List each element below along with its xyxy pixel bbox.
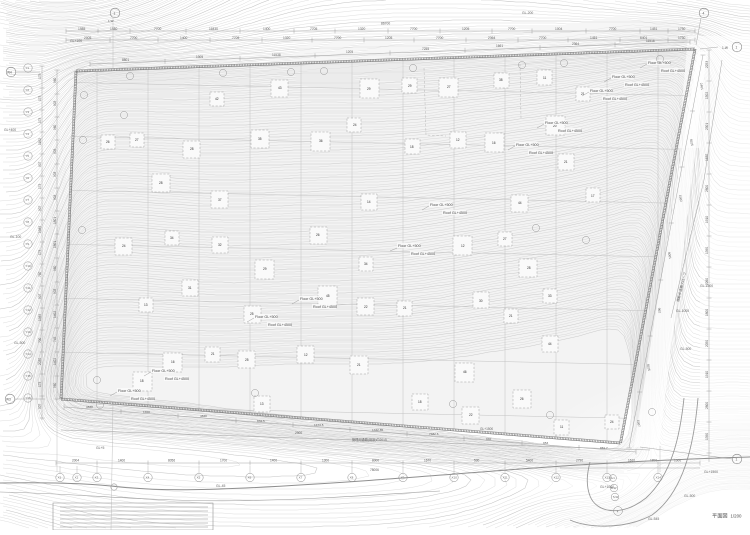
svg-text:14: 14 bbox=[367, 200, 371, 204]
svg-text:GL-500: GL-500 bbox=[680, 347, 691, 351]
svg-text:Y5: Y5 bbox=[25, 154, 29, 158]
svg-text:21: 21 bbox=[357, 363, 361, 367]
svg-text:700: 700 bbox=[38, 337, 42, 343]
svg-text:173: 173 bbox=[38, 183, 42, 189]
svg-text:86700: 86700 bbox=[381, 22, 390, 26]
svg-text:Y11: Y11 bbox=[25, 286, 30, 290]
svg-text:18: 18 bbox=[140, 379, 144, 383]
svg-text:1801: 1801 bbox=[53, 241, 57, 248]
svg-text:X8: X8 bbox=[350, 476, 354, 480]
svg-text:7705: 7705 bbox=[232, 36, 240, 40]
svg-text:2790: 2790 bbox=[576, 459, 583, 463]
svg-text:X3: X3 bbox=[95, 476, 99, 480]
svg-text:1400: 1400 bbox=[270, 459, 277, 463]
svg-text:31: 31 bbox=[188, 286, 192, 290]
svg-text:5-W: 5-W bbox=[613, 495, 618, 499]
svg-text:12: 12 bbox=[456, 138, 460, 142]
svg-text:8000: 8000 bbox=[372, 459, 379, 463]
svg-text:Roof GL+4500: Roof GL+4500 bbox=[411, 252, 435, 256]
svg-text:45: 45 bbox=[326, 294, 330, 298]
svg-text:Y9: Y9 bbox=[25, 242, 29, 246]
svg-text:1980: 1980 bbox=[110, 27, 118, 31]
svg-text:27: 27 bbox=[503, 237, 507, 241]
svg-text:Floor GL+500: Floor GL+500 bbox=[545, 121, 568, 125]
svg-text:1-W: 1-W bbox=[108, 19, 114, 23]
svg-text:881.7: 881.7 bbox=[600, 446, 608, 450]
svg-text:44: 44 bbox=[518, 201, 522, 205]
svg-text:Roof GL+4500: Roof GL+4500 bbox=[558, 129, 582, 133]
svg-text:1162: 1162 bbox=[38, 138, 42, 145]
svg-text:18: 18 bbox=[418, 400, 422, 404]
svg-text:1985: 1985 bbox=[38, 314, 42, 321]
svg-text:43: 43 bbox=[278, 86, 282, 90]
svg-text:Roof GL+4500: Roof GL+4500 bbox=[603, 97, 627, 101]
svg-text:940: 940 bbox=[486, 437, 491, 441]
svg-text:21: 21 bbox=[211, 352, 215, 356]
svg-text:4840: 4840 bbox=[200, 414, 207, 418]
svg-text:X14: X14 bbox=[656, 476, 662, 480]
svg-text:1700: 1700 bbox=[220, 459, 227, 463]
svg-text:2364: 2364 bbox=[488, 36, 496, 40]
svg-text:907: 907 bbox=[38, 403, 42, 409]
svg-text:Y7: Y7 bbox=[25, 198, 29, 202]
svg-text:Y1: Y1 bbox=[25, 66, 29, 70]
svg-text:Roof GL+4500: Roof GL+4500 bbox=[313, 305, 337, 309]
svg-text:16: 16 bbox=[492, 141, 496, 145]
svg-text:35: 35 bbox=[258, 137, 262, 141]
svg-text:22: 22 bbox=[469, 413, 473, 417]
svg-text:1: 1 bbox=[114, 12, 116, 16]
svg-text:2800: 2800 bbox=[705, 402, 709, 409]
svg-text:Y12: Y12 bbox=[25, 308, 31, 312]
svg-text:530: 530 bbox=[474, 459, 480, 463]
svg-text:1451: 1451 bbox=[650, 27, 658, 31]
svg-text:2900: 2900 bbox=[295, 431, 302, 435]
svg-text:Roof GL+4500: Roof GL+4500 bbox=[165, 377, 189, 381]
svg-text:Floor GL+500: Floor GL+500 bbox=[118, 389, 141, 393]
svg-text:7700: 7700 bbox=[334, 36, 342, 40]
svg-text:Roof GL+4500: Roof GL+4500 bbox=[268, 323, 292, 327]
svg-text:21: 21 bbox=[564, 160, 568, 164]
svg-text:1801: 1801 bbox=[53, 217, 57, 224]
svg-text:960: 960 bbox=[53, 124, 57, 130]
svg-text:Floor GL+500: Floor GL+500 bbox=[152, 369, 175, 373]
svg-text:36: 36 bbox=[319, 139, 323, 143]
svg-text:907: 907 bbox=[38, 293, 42, 299]
svg-text:2253: 2253 bbox=[705, 61, 709, 68]
svg-text:Y2: Y2 bbox=[25, 88, 29, 92]
svg-text:960: 960 bbox=[53, 265, 57, 271]
svg-text:X7: X7 bbox=[299, 476, 303, 480]
svg-text:907: 907 bbox=[38, 205, 42, 211]
svg-text:745: 745 bbox=[53, 336, 57, 342]
svg-text:Y3: Y3 bbox=[25, 110, 29, 114]
svg-text:1390: 1390 bbox=[705, 433, 709, 440]
svg-text:GL-545: GL-545 bbox=[648, 517, 659, 521]
svg-text:46: 46 bbox=[463, 370, 467, 374]
svg-text:1004: 1004 bbox=[555, 27, 563, 31]
svg-text:Roof GL+4500: Roof GL+4500 bbox=[443, 211, 467, 215]
svg-text:16: 16 bbox=[171, 360, 175, 364]
svg-text:1800: 1800 bbox=[705, 309, 709, 316]
svg-text:953: 953 bbox=[543, 441, 548, 445]
svg-text:Y8: Y8 bbox=[25, 220, 29, 224]
svg-text:7700: 7700 bbox=[539, 36, 547, 40]
svg-text:Floor GL+500: Floor GL+500 bbox=[612, 75, 635, 79]
svg-text:X1: X1 bbox=[58, 476, 62, 480]
svg-text:GL-100: GL-100 bbox=[10, 235, 21, 239]
svg-text:X11: X11 bbox=[503, 476, 508, 480]
svg-text:2800: 2800 bbox=[705, 185, 709, 192]
svg-text:1305: 1305 bbox=[196, 55, 203, 59]
svg-text:13: 13 bbox=[144, 303, 148, 307]
svg-text:2030: 2030 bbox=[38, 358, 42, 365]
svg-text:GL+1000: GL+1000 bbox=[600, 485, 614, 489]
svg-text:78006: 78006 bbox=[370, 468, 379, 472]
svg-text:1320: 1320 bbox=[283, 36, 291, 40]
svg-text:1-W: 1-W bbox=[722, 46, 728, 50]
svg-text:12: 12 bbox=[461, 244, 465, 248]
svg-text:GL-500: GL-500 bbox=[684, 494, 695, 498]
svg-text:Y6: Y6 bbox=[25, 176, 29, 180]
svg-text:GL-500: GL-500 bbox=[14, 341, 25, 345]
svg-text:1910: 1910 bbox=[705, 216, 709, 223]
svg-text:7700: 7700 bbox=[410, 27, 418, 31]
svg-text:Y4: Y4 bbox=[25, 132, 29, 136]
svg-text:1400: 1400 bbox=[143, 410, 150, 414]
svg-text:8801: 8801 bbox=[122, 58, 129, 62]
svg-text:7700: 7700 bbox=[130, 36, 138, 40]
svg-text:38: 38 bbox=[499, 78, 503, 82]
svg-text:26: 26 bbox=[106, 140, 110, 144]
svg-text:X2: X2 bbox=[75, 476, 79, 480]
svg-text:GL+5: GL+5 bbox=[96, 446, 105, 450]
svg-text:832.5: 832.5 bbox=[257, 419, 265, 423]
svg-text:7705: 7705 bbox=[310, 27, 318, 31]
svg-text:29: 29 bbox=[367, 87, 371, 91]
svg-text:1300: 1300 bbox=[322, 459, 329, 463]
svg-text:1400: 1400 bbox=[118, 459, 125, 463]
svg-text:GL-45: GL-45 bbox=[216, 484, 226, 488]
svg-text:1205: 1205 bbox=[385, 36, 393, 40]
svg-text:903: 903 bbox=[53, 100, 57, 106]
svg-text:903: 903 bbox=[53, 171, 57, 177]
svg-text:Floor GL+500: Floor GL+500 bbox=[590, 89, 613, 93]
svg-text:2364: 2364 bbox=[572, 42, 579, 46]
svg-text:1985: 1985 bbox=[38, 226, 42, 233]
svg-text:Roof GL+4500: Roof GL+4500 bbox=[529, 151, 553, 155]
svg-text:1502: 1502 bbox=[705, 92, 709, 99]
svg-text:25: 25 bbox=[245, 358, 249, 362]
svg-text:1400: 1400 bbox=[263, 27, 271, 31]
svg-text:960: 960 bbox=[53, 77, 57, 83]
svg-text:25: 25 bbox=[250, 312, 254, 316]
svg-text:Floor GL+500: Floor GL+500 bbox=[255, 315, 278, 319]
svg-text:W4: W4 bbox=[7, 71, 12, 75]
svg-text:7700: 7700 bbox=[508, 27, 516, 31]
svg-text:GL+1500: GL+1500 bbox=[480, 427, 493, 431]
svg-text:11830: 11830 bbox=[209, 27, 218, 31]
svg-text:X4: X4 bbox=[146, 476, 150, 480]
svg-text:Floor GL+500: Floor GL+500 bbox=[648, 61, 671, 65]
svg-text:Roof GL+4500: Roof GL+4500 bbox=[625, 83, 649, 87]
svg-text:903: 903 bbox=[53, 194, 57, 200]
svg-text:X10: X10 bbox=[452, 476, 458, 480]
svg-text:17: 17 bbox=[591, 194, 595, 198]
svg-text:29: 29 bbox=[263, 267, 267, 271]
svg-text:27: 27 bbox=[135, 138, 139, 142]
svg-text:1661: 1661 bbox=[496, 44, 503, 48]
svg-text:8056: 8056 bbox=[168, 459, 175, 463]
svg-text:11: 11 bbox=[543, 76, 547, 80]
svg-text:1: 1 bbox=[736, 458, 738, 462]
svg-text:1985: 1985 bbox=[78, 27, 86, 31]
svg-text:Floor GL+500: Floor GL+500 bbox=[300, 297, 323, 301]
svg-text:3838: 3838 bbox=[86, 405, 93, 409]
svg-text:1390: 1390 bbox=[705, 247, 709, 254]
svg-text:173: 173 bbox=[38, 117, 42, 123]
svg-text:173: 173 bbox=[38, 95, 42, 101]
svg-text:32: 32 bbox=[218, 243, 222, 247]
svg-text:平面図: 平面図 bbox=[712, 513, 728, 520]
svg-text:28: 28 bbox=[527, 266, 531, 270]
svg-text:42: 42 bbox=[215, 97, 219, 101]
svg-text:Y13: Y13 bbox=[25, 330, 31, 334]
svg-text:2050: 2050 bbox=[705, 340, 709, 347]
svg-text:28: 28 bbox=[190, 147, 194, 151]
svg-text:1670: 1670 bbox=[424, 459, 431, 463]
svg-text:44: 44 bbox=[548, 342, 552, 346]
svg-text:29: 29 bbox=[408, 84, 412, 88]
svg-text:Y10: Y10 bbox=[25, 264, 31, 268]
svg-text:760: 760 bbox=[38, 271, 42, 277]
svg-text:2005: 2005 bbox=[84, 36, 92, 40]
svg-text:Roof GL+4500: Roof GL+4500 bbox=[661, 69, 685, 73]
svg-text:Floor GL+500: Floor GL+500 bbox=[398, 244, 421, 248]
svg-text:18: 18 bbox=[410, 145, 414, 149]
svg-text:33: 33 bbox=[548, 294, 552, 298]
svg-text:11516: 11516 bbox=[646, 39, 655, 43]
svg-text:7700: 7700 bbox=[154, 27, 162, 31]
svg-text:GL-1500: GL-1500 bbox=[700, 284, 713, 288]
svg-text:GL-1000: GL-1000 bbox=[676, 309, 689, 313]
svg-text:903: 903 bbox=[53, 148, 57, 154]
svg-text:Floor GL+500: Floor GL+500 bbox=[516, 143, 539, 147]
svg-text:1730: 1730 bbox=[678, 27, 686, 31]
svg-text:1205: 1205 bbox=[462, 27, 470, 31]
svg-text:1/200: 1/200 bbox=[731, 514, 743, 519]
svg-text:4: 4 bbox=[703, 12, 705, 16]
svg-text:3+1: 3+1 bbox=[610, 476, 615, 480]
svg-text:1451: 1451 bbox=[590, 36, 598, 40]
svg-text:7255: 7255 bbox=[422, 47, 429, 51]
svg-text:27: 27 bbox=[447, 85, 451, 89]
svg-text:1320: 1320 bbox=[358, 27, 366, 31]
svg-text:26: 26 bbox=[316, 233, 320, 237]
svg-text:907: 907 bbox=[38, 161, 42, 167]
svg-text:1400: 1400 bbox=[180, 36, 188, 40]
svg-text:1205: 1205 bbox=[346, 50, 353, 54]
svg-text:X6: X6 bbox=[248, 476, 252, 480]
svg-text:1402: 1402 bbox=[53, 311, 57, 318]
svg-text:24: 24 bbox=[610, 420, 614, 424]
svg-text:5400: 5400 bbox=[526, 459, 533, 463]
svg-text:GL+100: GL+100 bbox=[70, 39, 82, 43]
svg-text:21: 21 bbox=[509, 314, 513, 318]
svg-text:X5: X5 bbox=[197, 476, 201, 480]
svg-text:2004: 2004 bbox=[72, 459, 79, 463]
svg-text:12: 12 bbox=[304, 353, 308, 357]
svg-text:34: 34 bbox=[364, 262, 368, 266]
svg-text:34: 34 bbox=[170, 236, 174, 240]
svg-text:7700: 7700 bbox=[609, 27, 617, 31]
svg-text:1: 1 bbox=[736, 46, 738, 50]
svg-text:Roof GL+4500: Roof GL+4500 bbox=[131, 397, 155, 401]
svg-text:1342.85: 1342.85 bbox=[372, 428, 383, 432]
svg-text:W3: W3 bbox=[6, 398, 11, 402]
svg-text:173: 173 bbox=[38, 249, 42, 255]
svg-text:X12: X12 bbox=[554, 476, 560, 480]
svg-text:1402: 1402 bbox=[53, 358, 57, 365]
svg-text:11538: 11538 bbox=[272, 53, 281, 57]
svg-text:GL-200: GL-200 bbox=[522, 11, 533, 15]
svg-text:21: 21 bbox=[403, 306, 407, 310]
svg-text:Y16: Y16 bbox=[25, 396, 31, 400]
svg-text:GL+1500: GL+1500 bbox=[704, 470, 718, 474]
svg-text:管理用通路(既設)巾2015: 管理用通路(既設)巾2015 bbox=[352, 437, 387, 442]
svg-text:173: 173 bbox=[38, 381, 42, 387]
svg-text:22: 22 bbox=[364, 305, 368, 309]
svg-text:24: 24 bbox=[353, 123, 357, 127]
svg-text:Floor GL+500: Floor GL+500 bbox=[430, 203, 453, 207]
svg-text:26: 26 bbox=[520, 397, 524, 401]
svg-text:903: 903 bbox=[53, 288, 57, 294]
svg-text:Y14: Y14 bbox=[25, 352, 31, 356]
svg-text:173: 173 bbox=[38, 73, 42, 79]
svg-text:28: 28 bbox=[159, 181, 163, 185]
svg-text:960: 960 bbox=[53, 382, 57, 388]
svg-text:7700: 7700 bbox=[436, 36, 444, 40]
svg-text:11: 11 bbox=[560, 425, 564, 429]
svg-text:37: 37 bbox=[218, 198, 222, 202]
svg-text:1473.5: 1473.5 bbox=[314, 423, 324, 427]
svg-text:24: 24 bbox=[122, 244, 126, 248]
svg-text:30: 30 bbox=[479, 299, 483, 303]
svg-text:2301: 2301 bbox=[705, 123, 709, 130]
svg-text:13: 13 bbox=[260, 402, 264, 406]
svg-text:7482.6: 7482.6 bbox=[429, 432, 439, 436]
svg-text:GL+400: GL+400 bbox=[4, 128, 16, 132]
svg-text:Y15: Y15 bbox=[25, 374, 31, 378]
svg-text:1910: 1910 bbox=[705, 371, 709, 378]
svg-text:1730: 1730 bbox=[678, 36, 686, 40]
